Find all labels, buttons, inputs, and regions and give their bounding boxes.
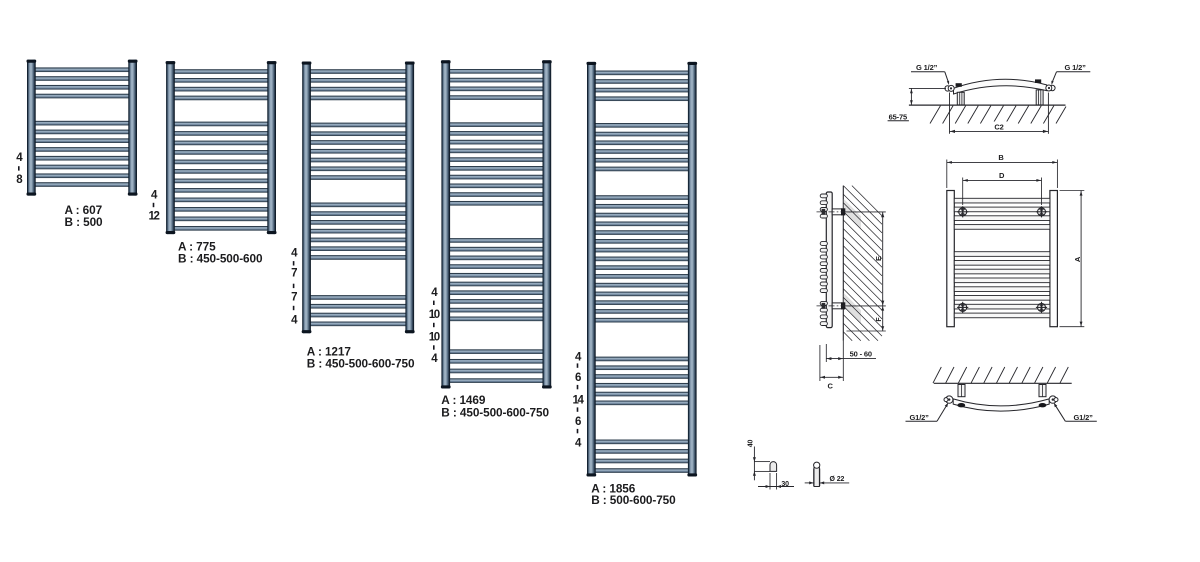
- svg-text:G1/2”: G1/2”: [910, 413, 930, 422]
- svg-text:G 1/2”: G 1/2”: [1065, 63, 1087, 72]
- svg-text:40: 40: [748, 440, 755, 448]
- svg-text:4: 4: [291, 247, 298, 259]
- svg-text:D: D: [999, 171, 1005, 180]
- svg-text:8: 8: [16, 174, 23, 186]
- svg-text:E: E: [874, 256, 883, 261]
- svg-text:C: C: [828, 382, 834, 391]
- svg-text:G 1/2”: G 1/2”: [916, 63, 938, 72]
- svg-text:B : 450-500-600: B : 450-500-600: [178, 252, 263, 266]
- svg-text:4: 4: [431, 287, 438, 299]
- svg-text:7: 7: [291, 267, 297, 279]
- svg-text:4: 4: [575, 352, 582, 364]
- svg-text:B : 450-500-600-750: B : 450-500-600-750: [307, 356, 415, 370]
- svg-text:4: 4: [431, 353, 438, 365]
- svg-text:A: A: [1073, 256, 1082, 262]
- svg-text:7: 7: [291, 292, 297, 304]
- svg-text:4: 4: [575, 438, 582, 450]
- svg-text:B: B: [998, 153, 1004, 162]
- svg-text:F: F: [876, 317, 883, 322]
- svg-text:30: 30: [781, 481, 789, 488]
- svg-text:B : 450-500-600-750: B : 450-500-600-750: [441, 405, 549, 419]
- svg-text:B : 500-600-750: B : 500-600-750: [591, 493, 676, 507]
- svg-text:Ø 22: Ø 22: [830, 476, 845, 483]
- svg-text:4: 4: [16, 152, 23, 164]
- svg-text:G1/2”: G1/2”: [1074, 413, 1094, 422]
- svg-text:B : 500: B : 500: [65, 215, 104, 229]
- svg-text:10: 10: [429, 309, 440, 321]
- svg-text:10: 10: [429, 331, 440, 343]
- svg-text:4: 4: [151, 189, 158, 201]
- svg-text:4: 4: [291, 314, 298, 326]
- svg-text:C2: C2: [994, 122, 1003, 131]
- svg-text:12: 12: [149, 210, 160, 222]
- svg-text:14: 14: [573, 395, 585, 407]
- svg-text:6: 6: [575, 372, 581, 384]
- svg-text:6: 6: [575, 416, 581, 428]
- svg-text:65-75: 65-75: [889, 112, 907, 121]
- svg-text:50 - 60: 50 - 60: [850, 350, 872, 359]
